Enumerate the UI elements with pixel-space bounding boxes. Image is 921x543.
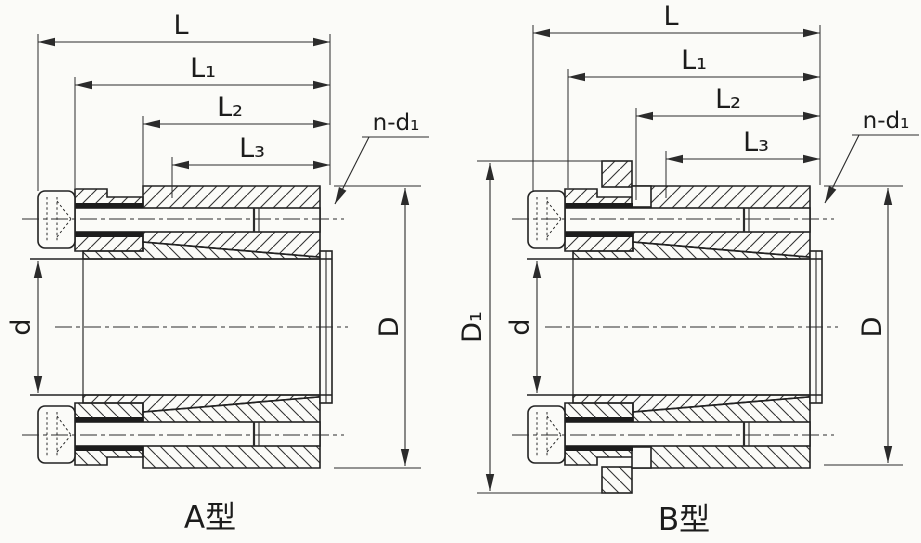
b-dim-L2: L₂ [636, 84, 820, 200]
a-washer-line-top-2 [75, 232, 143, 237]
a-dim-L: L [38, 10, 330, 191]
a-dim-label-L: L [173, 10, 188, 41]
b-dim-label-L1: L₁ [681, 45, 707, 76]
a-dim-label-D: D [374, 317, 405, 338]
a-dim-label-L3: L₃ [239, 133, 265, 164]
technical-drawing-sheet: L L₁ L₂ L₃ n-d₁ D [0, 0, 921, 543]
a-washer-line-top-1 [75, 203, 143, 208]
b-washer-line-bottom-1 [565, 446, 633, 451]
locking-assembly-diagram: L L₁ L₂ L₃ n-d₁ D [0, 0, 921, 543]
b-washer-line-bottom-2 [565, 417, 633, 422]
a-dim-L2: L₂ [143, 92, 330, 200]
b-washer-line-top-1 [565, 203, 633, 208]
b-screw-shank-top [565, 208, 810, 232]
b-dim-label-D1: D₁ [457, 311, 488, 343]
a-dim-d: d [6, 261, 38, 393]
a-callout-n-d1: n-d₁ [335, 110, 429, 204]
b-upper-section [512, 186, 834, 259]
a-washer-line-bottom-2 [75, 417, 143, 422]
a-dim-label-d: d [6, 318, 37, 335]
b-step-notch-bottom [632, 447, 651, 468]
b-dim-D: D [824, 186, 903, 465]
caption-type-b: B型 [658, 502, 710, 538]
b-flange-tab-top [602, 161, 632, 187]
a-callout-label: n-d₁ [373, 110, 420, 136]
a-washer-line-bottom-1 [75, 446, 143, 451]
a-screw-shank-bottom [75, 422, 320, 446]
b-screw-shank-bottom [565, 422, 810, 446]
b-washer-line-top-2 [565, 232, 633, 237]
b-dim-L: L [533, 1, 820, 191]
b-flange-tab-bottom [602, 467, 632, 493]
a-dim-L1: L₁ [75, 53, 330, 188]
b-callout-n-d1: n-d₁ [825, 108, 919, 203]
a-upper-section [22, 186, 344, 259]
b-dim-label-L: L [663, 1, 678, 32]
a-screw-shank-top [75, 208, 320, 232]
b-step-notch-top [632, 186, 651, 207]
drawing-type-b: L L₁ L₂ L₃ n-d₁ D [457, 1, 919, 538]
b-dim-d: d [505, 261, 537, 393]
b-dim-label-D: D [857, 317, 888, 338]
a-lower-section [22, 395, 344, 468]
b-dim-label-L2: L₂ [715, 84, 741, 115]
drawing-type-a: L L₁ L₂ L₃ n-d₁ D [6, 10, 429, 536]
a-dim-label-L1: L₁ [190, 53, 216, 84]
b-dim-label-d: d [505, 318, 536, 335]
caption-type-a: A型 [184, 500, 236, 536]
b-callout-label: n-d₁ [863, 108, 910, 134]
b-dim-label-L3: L₃ [743, 127, 769, 158]
a-dim-label-L2: L₂ [217, 92, 243, 123]
b-lower-section [512, 395, 834, 468]
